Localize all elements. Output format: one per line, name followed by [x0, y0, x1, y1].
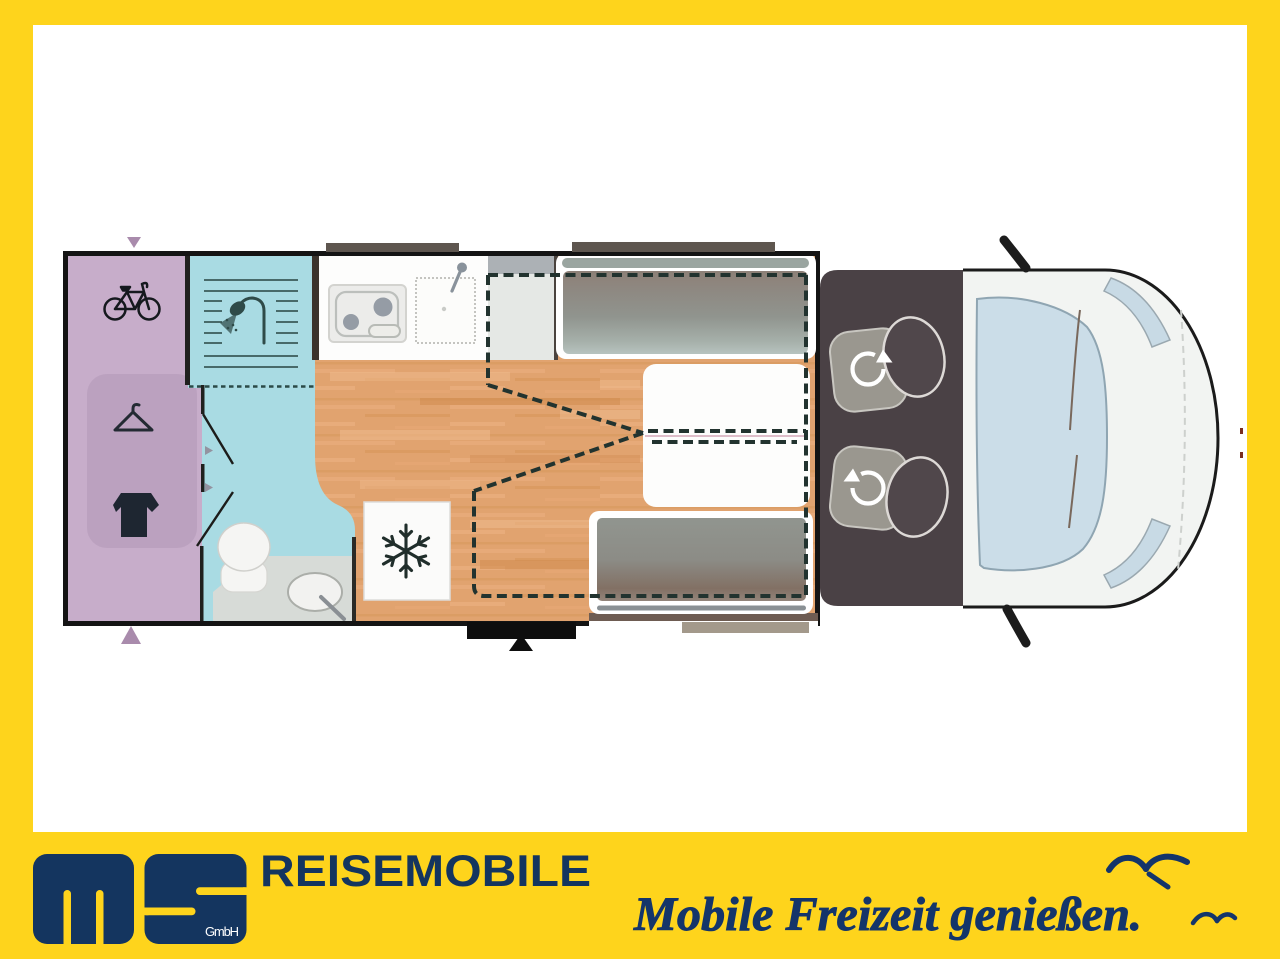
svg-text:Mobile Freizeit genießen.: Mobile Freizeit genießen.	[633, 888, 1142, 941]
svg-text:GmbH: GmbH	[205, 924, 239, 939]
svg-text:REISEMOBILE: REISEMOBILE	[260, 847, 591, 896]
